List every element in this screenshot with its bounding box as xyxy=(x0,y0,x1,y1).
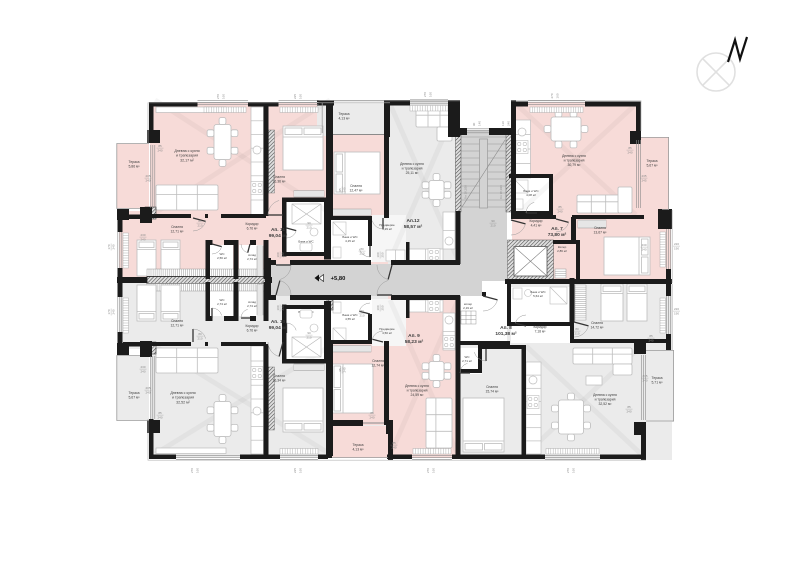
svg-text:5,64 м²: 5,64 м² xyxy=(533,294,543,298)
svg-text:99,04 м²: 99,04 м² xyxy=(269,233,288,239)
svg-text:6,76 м²: 6,76 м² xyxy=(247,328,259,332)
svg-text:Ап. 7: Ап. 7 xyxy=(551,226,563,232)
svg-text:и трапезария: и трапезария xyxy=(407,389,428,393)
svg-text:5,67 м²: 5,67 м² xyxy=(128,396,140,400)
svg-text:Коридор: Коридор xyxy=(533,325,546,329)
svg-text:210: 210 xyxy=(490,223,495,227)
svg-text:2,56 м²: 2,56 м² xyxy=(217,256,227,260)
svg-text:5,86 м²: 5,86 м² xyxy=(128,165,140,169)
svg-text:210: 210 xyxy=(197,336,202,340)
svg-text:Спалня: Спалня xyxy=(591,321,603,325)
svg-text:225: 225 xyxy=(293,94,297,99)
svg-text:Ап. 8: Ап. 8 xyxy=(500,325,512,331)
svg-text:210: 210 xyxy=(359,313,364,317)
svg-text:15,74 м²: 15,74 м² xyxy=(486,390,500,394)
svg-text:2,19 м²: 2,19 м² xyxy=(463,306,473,310)
svg-text:32,17 м²: 32,17 м² xyxy=(180,158,194,162)
svg-text:250: 250 xyxy=(380,252,384,257)
svg-text:4,41 м²: 4,41 м² xyxy=(531,223,543,227)
svg-text:Тераса: Тераса xyxy=(651,376,662,380)
svg-text:190: 190 xyxy=(674,246,679,250)
svg-text:101,38 м²: 101,38 м² xyxy=(495,331,517,337)
svg-text:12,47 м²: 12,47 м² xyxy=(350,189,364,193)
svg-text:160: 160 xyxy=(572,468,576,473)
svg-text:Дневна с кухня: Дневна с кухня xyxy=(593,393,617,397)
svg-text:Ап. 11: Ап. 11 xyxy=(271,227,285,233)
svg-text:240: 240 xyxy=(157,415,162,419)
svg-text:240: 240 xyxy=(111,309,115,314)
svg-text:12,74 м²: 12,74 м² xyxy=(372,364,386,368)
svg-text:240: 240 xyxy=(648,338,653,342)
svg-text:14,72 м²: 14,72 м² xyxy=(591,326,605,330)
svg-text:4,29 м²: 4,29 м² xyxy=(382,227,392,231)
svg-text:110: 110 xyxy=(501,121,505,126)
svg-text:Ап.12: Ап.12 xyxy=(406,218,419,224)
svg-text:210: 210 xyxy=(197,223,202,227)
svg-text:Коридор: Коридор xyxy=(245,222,258,226)
svg-text:и трапезария: и трапезария xyxy=(595,398,616,402)
svg-text:24,59 м²: 24,59 м² xyxy=(411,393,425,397)
svg-text:4,08 м²: 4,08 м² xyxy=(526,193,536,197)
svg-text:240: 240 xyxy=(369,415,374,419)
svg-text:16,36 м²: 16,36 м² xyxy=(273,180,287,184)
svg-text:240: 240 xyxy=(641,247,646,251)
svg-text:160: 160 xyxy=(299,94,303,99)
svg-text:4,50 м²: 4,50 м² xyxy=(382,331,392,335)
svg-text:12,71 м²: 12,71 м² xyxy=(171,230,185,234)
svg-text:190: 190 xyxy=(674,311,679,315)
svg-text:4,13 м²: 4,13 м² xyxy=(352,448,364,452)
svg-text:Спалня: Спалня xyxy=(372,359,384,363)
svg-text:245: 245 xyxy=(641,178,646,182)
svg-text:240: 240 xyxy=(342,367,346,372)
svg-text:Спалня: Спалня xyxy=(350,184,362,188)
svg-text:240: 240 xyxy=(642,378,647,382)
svg-text:58,57 м²: 58,57 м² xyxy=(404,224,423,230)
svg-text:Коридор: Коридор xyxy=(245,324,258,328)
svg-text:240: 240 xyxy=(507,121,511,126)
svg-text:Дневна с кухня: Дневна с кухня xyxy=(174,149,199,153)
svg-text:2,74 м²: 2,74 м² xyxy=(247,304,257,308)
svg-text:270: 270 xyxy=(190,468,194,473)
svg-text:240: 240 xyxy=(627,150,632,154)
svg-text:32,52 м²: 32,52 м² xyxy=(176,400,190,404)
svg-text:Дневна с кухня: Дневна с кухня xyxy=(400,162,424,166)
svg-text:6,76 м²: 6,76 м² xyxy=(247,226,259,230)
svg-text:12,71 м²: 12,71 м² xyxy=(171,324,185,328)
svg-text:Коридор: Коридор xyxy=(529,219,542,223)
svg-text:Ап. 10: Ап. 10 xyxy=(271,319,286,325)
svg-text:270: 270 xyxy=(550,93,554,98)
svg-text:210: 210 xyxy=(359,251,364,255)
svg-text:230: 230 xyxy=(280,305,284,310)
svg-text:99,04 м²: 99,04 м² xyxy=(269,325,288,331)
svg-text:и трапезария: и трапезария xyxy=(402,167,423,171)
svg-text:58,23 м²: 58,23 м² xyxy=(405,339,424,345)
svg-text:Спалня: Спалня xyxy=(273,175,285,179)
svg-text:240: 240 xyxy=(391,445,396,449)
svg-text:9 x 18,1/30: 9 x 18,1/30 xyxy=(464,185,468,199)
svg-text:240: 240 xyxy=(342,187,346,192)
svg-text:5,67 м²: 5,67 м² xyxy=(646,164,658,168)
svg-text:Тераса: Тераса xyxy=(646,159,657,163)
svg-text:90: 90 xyxy=(472,122,476,126)
svg-text:и трапезария: и трапезария xyxy=(176,154,198,158)
svg-text:210: 210 xyxy=(306,335,311,339)
svg-text:240: 240 xyxy=(111,244,115,249)
svg-text:Дневна с кухня: Дневна с кухня xyxy=(405,384,429,388)
svg-text:250: 250 xyxy=(380,305,384,310)
svg-text:5,71 м²: 5,71 м² xyxy=(651,381,663,385)
svg-text:4,15 м²: 4,15 м² xyxy=(345,239,355,243)
svg-text:4,13 м²: 4,13 м² xyxy=(338,117,350,121)
svg-text:30,79 м²: 30,79 м² xyxy=(568,163,582,167)
svg-text:240: 240 xyxy=(145,390,150,394)
svg-text:2,71 м²: 2,71 м² xyxy=(462,359,472,363)
svg-text:2,86 м²: 2,86 м² xyxy=(557,249,567,253)
svg-text:13,67 м²: 13,67 м² xyxy=(594,231,608,235)
svg-text:+5,80: +5,80 xyxy=(331,276,346,282)
svg-text:160: 160 xyxy=(432,468,436,473)
svg-text:73,80 м²: 73,80 м² xyxy=(548,232,567,238)
svg-text:9 x 18,1/30: 9 x 18,1/30 xyxy=(499,185,503,199)
svg-text:Дневна с кухня: Дневна с кухня xyxy=(170,391,195,395)
svg-text:210: 210 xyxy=(574,331,579,335)
svg-text:140: 140 xyxy=(478,121,482,126)
svg-text:210: 210 xyxy=(306,225,311,229)
svg-text:270: 270 xyxy=(423,92,427,97)
svg-text:7,18 м²: 7,18 м² xyxy=(535,329,547,333)
svg-text:16,34 м²: 16,34 м² xyxy=(273,379,287,383)
svg-text:и трапезария: и трапезария xyxy=(172,396,194,400)
svg-text:160: 160 xyxy=(196,468,200,473)
svg-text:Спалня: Спалня xyxy=(273,374,285,378)
svg-text:Спалня: Спалня xyxy=(594,226,606,230)
svg-text:Тераса: Тераса xyxy=(128,391,139,395)
svg-text:Спалня: Спалня xyxy=(486,385,498,389)
svg-text:Спалня: Спалня xyxy=(171,225,183,229)
svg-text:и трапезария: и трапезария xyxy=(564,159,585,163)
svg-text:240: 240 xyxy=(557,209,562,213)
svg-text:160: 160 xyxy=(299,468,303,473)
svg-text:160: 160 xyxy=(556,93,560,98)
svg-text:240: 240 xyxy=(157,148,162,152)
svg-text:270: 270 xyxy=(426,468,430,473)
svg-text:270: 270 xyxy=(216,94,220,99)
svg-text:160: 160 xyxy=(222,94,226,99)
svg-text:Дневна с кухня: Дневна с кухня xyxy=(562,154,586,158)
svg-text:2,74 м²: 2,74 м² xyxy=(247,257,257,261)
svg-text:160: 160 xyxy=(429,92,433,97)
svg-text:Тераса: Тераса xyxy=(338,112,349,116)
svg-text:Спалня: Спалня xyxy=(171,319,183,323)
svg-text:230: 230 xyxy=(280,252,284,257)
svg-text:Тераса: Тераса xyxy=(128,160,139,164)
svg-text:Ап. 9: Ап. 9 xyxy=(408,333,420,339)
svg-text:225: 225 xyxy=(293,468,297,473)
svg-text:4,55 м²: 4,55 м² xyxy=(345,317,355,321)
svg-text:240: 240 xyxy=(140,237,145,241)
svg-text:Тераса: Тераса xyxy=(352,443,363,447)
svg-text:240: 240 xyxy=(626,409,631,413)
svg-text:270: 270 xyxy=(566,468,570,473)
svg-text:32,52 м²: 32,52 м² xyxy=(599,402,613,406)
svg-text:2,74 м²: 2,74 м² xyxy=(217,302,227,306)
svg-text:240: 240 xyxy=(140,369,145,373)
svg-text:25,11 м²: 25,11 м² xyxy=(406,171,420,175)
svg-text:240: 240 xyxy=(145,178,150,182)
